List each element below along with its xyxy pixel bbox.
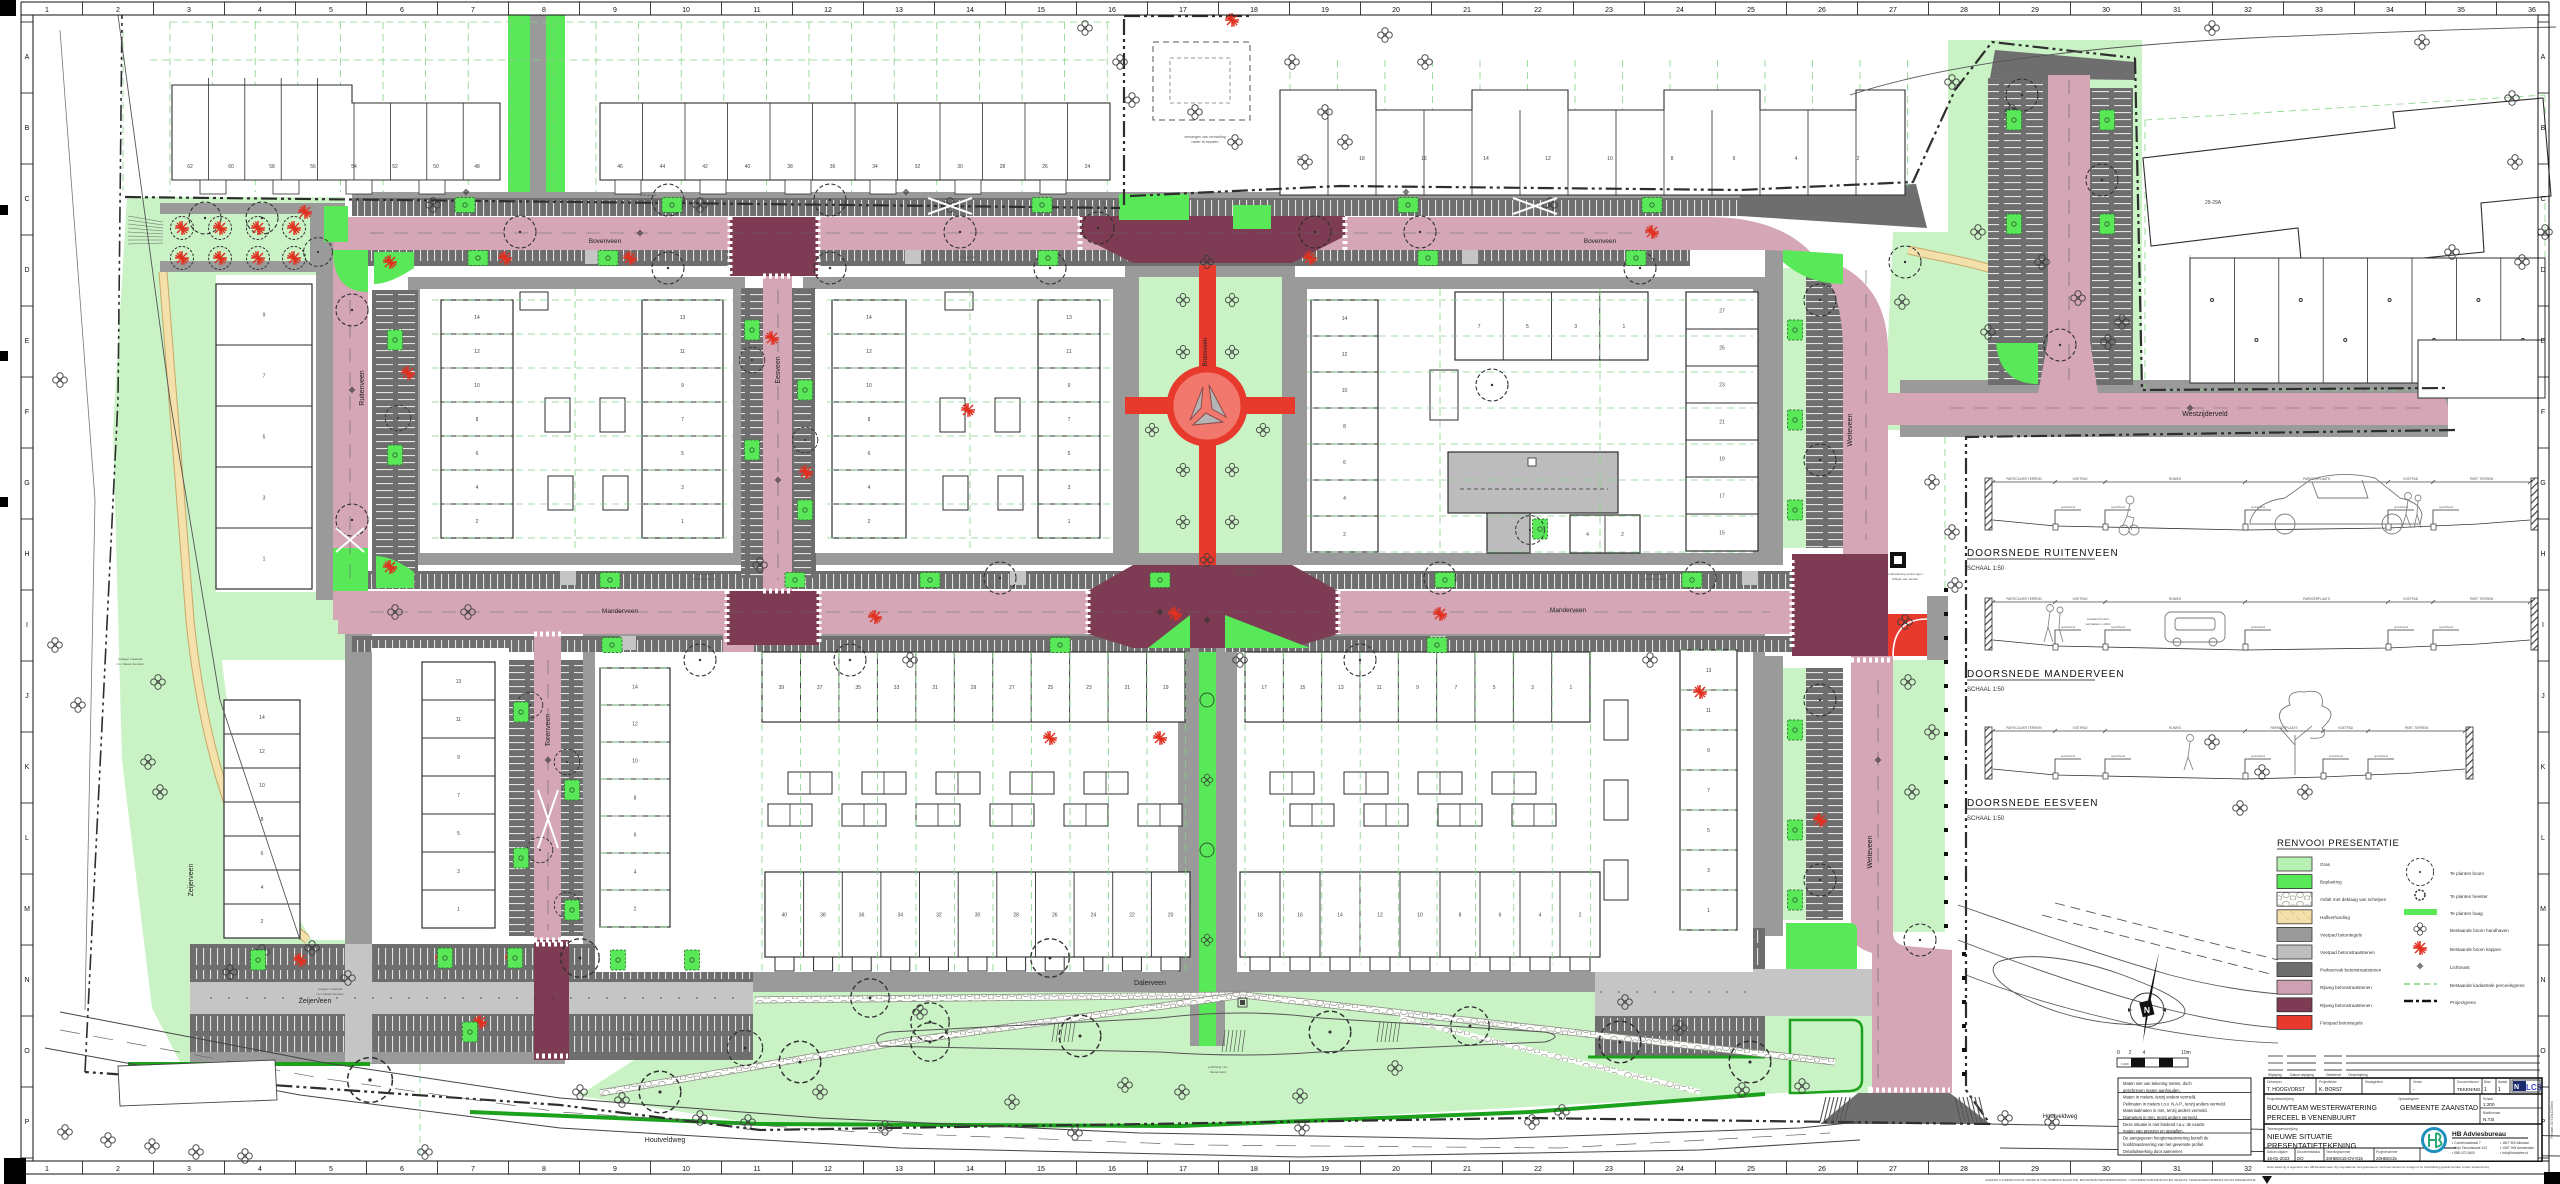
svg-text:7: 7 (1454, 685, 1457, 691)
svg-text:5: 5 (329, 1166, 333, 1173)
svg-text:aanlegplaats: aanlegplaats (696, 572, 714, 576)
svg-text:44: 44 (660, 164, 666, 170)
svg-text:30: 30 (2102, 1166, 2110, 1173)
svg-text:Te planten heester: Te planten heester (2450, 894, 2488, 899)
svg-text:Tekeningnummer: Tekeningnummer (2326, 1150, 2351, 1154)
svg-text:18: 18 (1257, 913, 1263, 919)
svg-text:33: 33 (2315, 7, 2323, 14)
svg-text:7: 7 (471, 1166, 475, 1173)
svg-text:Projectbeschrijving: Projectbeschrijving (2267, 1097, 2294, 1101)
svg-text:21: 21 (1463, 7, 1471, 14)
svg-text:39: 39 (778, 685, 784, 691)
svg-text:2: 2 (261, 919, 264, 925)
svg-text:7: 7 (1707, 788, 1710, 794)
svg-text:14: 14 (259, 715, 265, 721)
svg-text:stiftigen aan derden: stiftigen aan derden (1892, 577, 1919, 581)
svg-text:PRESENTATIETEKENING: PRESENTATIETEKENING (2267, 1141, 2356, 1150)
svg-text:Maten niet van tekening meten,: Maten niet van tekening meten, doch (2123, 1081, 2192, 1086)
svg-text:RIJWEG: RIJWEG (2169, 477, 2182, 481)
svg-text:26: 26 (1042, 164, 1048, 170)
svg-text:CAD8410 C:\USERS\CVITGF GROEP: CAD8410 C:\USERS\CVITGF GROEP B.V\06-20H… (1985, 1178, 2256, 1182)
svg-text:14: 14 (1483, 156, 1489, 162)
svg-text:Ruitenveen: Ruitenveen (359, 370, 366, 406)
svg-text:8: 8 (634, 796, 637, 802)
svg-text:aanlegplaats: aanlegplaats (1646, 572, 1664, 576)
svg-text:aanlegplaats: aanlegplaats (1236, 567, 1254, 571)
svg-text:huisvuilcontainers: huisvuilcontainers (1233, 572, 1257, 576)
svg-text:Documentstatus: Documentstatus (2297, 1150, 2320, 1154)
svg-text:VOETPAD: VOETPAD (2073, 597, 2089, 601)
svg-text:K. BORST: K. BORST (2319, 1087, 2342, 1093)
svg-text:Weiteveen: Weiteveen (1847, 413, 1854, 446)
svg-text:12: 12 (824, 7, 832, 14)
svg-text:Beplanting: Beplanting (2320, 880, 2342, 885)
svg-text:10: 10 (1417, 913, 1423, 919)
svg-text:2: 2 (1343, 532, 1346, 538)
svg-text:16: 16 (1297, 913, 1303, 919)
svg-text:14: 14 (966, 7, 974, 14)
svg-text:huisvuilcontainers: huisvuilcontainers (636, 198, 660, 202)
svg-text:10: 10 (682, 1166, 690, 1173)
svg-text:L: L (2541, 835, 2545, 842)
svg-text:24: 24 (1085, 164, 1091, 170)
svg-text:9: 9 (613, 1166, 617, 1173)
svg-text:2: 2 (1579, 913, 1582, 919)
svg-text:Datum uitgave: Datum uitgave (2267, 1150, 2288, 1154)
svg-text:12: 12 (1377, 913, 1383, 919)
svg-text:3: 3 (1574, 324, 1577, 330)
svg-text:opsluitband: opsluitband (2439, 505, 2454, 509)
svg-text:P: P (2541, 1119, 2546, 1126)
svg-text:DOORSNEDE EESVEEN: DOORSNEDE EESVEEN (1967, 798, 2098, 809)
svg-text:19: 19 (1163, 685, 1169, 691)
svg-text:Lichtmast: Lichtmast (2450, 965, 2470, 970)
svg-text:PARTICULIER TERREIN: PARTICULIER TERREIN (2006, 597, 2042, 601)
svg-text:7: 7 (1478, 324, 1481, 330)
svg-text:13: 13 (680, 315, 686, 321)
svg-text:Omschrijving: Omschrijving (2348, 1073, 2368, 1077)
svg-text:40: 40 (782, 913, 788, 919)
svg-text:18: 18 (1250, 7, 1258, 14)
svg-text:27: 27 (1889, 1166, 1897, 1173)
svg-text:opsluitband: opsluitband (2251, 625, 2266, 629)
svg-text:N: N (2144, 1005, 2150, 1015)
svg-text:12: 12 (474, 349, 480, 355)
svg-text:60: 60 (228, 164, 234, 170)
svg-text:• Comeniusstraat 7: • Comeniusstraat 7 (2452, 1141, 2481, 1145)
svg-text:opsluitband: opsluitband (2111, 625, 2126, 629)
svg-text:PARTICULIER TERREIN: PARTICULIER TERREIN (2006, 726, 2042, 730)
svg-text:10: 10 (259, 783, 265, 789)
svg-text:• 1817 MS Alkmaar: • 1817 MS Alkmaar (2500, 1141, 2530, 1145)
svg-text:bestaand trottoir: bestaand trottoir (2087, 617, 2109, 621)
svg-text:30: 30 (957, 164, 963, 170)
svg-text:H: H (24, 551, 29, 558)
svg-text:N: N (2514, 1084, 2519, 1091)
svg-text:aanbrengen: aanbrengen (620, 1037, 636, 1041)
svg-text:K: K (25, 764, 30, 771)
svg-text:onderplanting aanbrengen: onderplanting aanbrengen (1887, 572, 1922, 576)
svg-text:11: 11 (680, 349, 685, 355)
svg-text:28: 28 (1000, 164, 1006, 170)
svg-text:30: 30 (2102, 7, 2110, 14)
svg-text:D: D (24, 267, 29, 274)
svg-text:13: 13 (895, 1166, 903, 1173)
svg-text:Manderveen: Manderveen (602, 608, 639, 615)
svg-text:26: 26 (1818, 1166, 1826, 1173)
svg-text:32: 32 (2244, 7, 2252, 14)
svg-text:12: 12 (866, 349, 872, 355)
svg-text:RENVOOI PRESENTATIE: RENVOOI PRESENTATIE (2277, 838, 2399, 849)
svg-text:8: 8 (476, 417, 479, 423)
svg-text:1: 1 (1707, 908, 1710, 914)
svg-text:25: 25 (1719, 346, 1725, 352)
svg-text:C: C (24, 196, 29, 203)
svg-text:flauwe talud: flauwe talud (1210, 1070, 1226, 1074)
svg-text:Bestaande kadastrale perceelsg: Bestaande kadastrale perceelsgrens (2450, 983, 2525, 988)
svg-text:3: 3 (1068, 485, 1071, 491)
svg-text:Te planten boom: Te planten boom (2450, 871, 2484, 876)
svg-text:Deze tekening is eigendom van: Deze tekening is eigendom van HB Adviesb… (2267, 1165, 2490, 1169)
svg-text:18: 18 (1359, 156, 1365, 162)
svg-text:Wijziging: Wijziging (2268, 1073, 2282, 1077)
svg-text:1: 1 (2484, 1087, 2487, 1093)
svg-text:6: 6 (1343, 460, 1346, 466)
svg-text:28: 28 (1013, 913, 1019, 919)
svg-text:7: 7 (1068, 417, 1071, 423)
svg-text:10m: 10m (2181, 1050, 2191, 1056)
svg-text:11: 11 (1377, 685, 1382, 691)
svg-text:26: 26 (1052, 913, 1058, 919)
svg-text:18: 18 (1250, 1166, 1258, 1173)
svg-text:50: 50 (433, 164, 439, 170)
svg-text:DOORSNEDE MANDERVEEN: DOORSNEDE MANDERVEEN (1967, 669, 2125, 680)
svg-text:I: I (2542, 622, 2544, 629)
svg-text:9: 9 (1416, 685, 1419, 691)
svg-text:• Krijn Taconiskade 412: • Krijn Taconiskade 412 (2452, 1146, 2487, 1150)
svg-text:DOORSNEDE RUITENVEEN: DOORSNEDE RUITENVEEN (1967, 548, 2119, 559)
svg-text:K: K (2541, 764, 2546, 771)
svg-text:29-29A: 29-29A (2205, 200, 2222, 206)
svg-text:verharding: verharding (621, 1032, 636, 1036)
svg-text:Bronsveen: Bronsveen (1203, 338, 1209, 367)
svg-text:23: 23 (1605, 7, 1613, 14)
svg-text:opsluitband: opsluitband (2111, 754, 2126, 758)
svg-text:Peilmaten in meters t.o.v. N.A: Peilmaten in meters t.o.v. N.A.P., tenzi… (2123, 1101, 2226, 1106)
svg-text:35: 35 (2457, 7, 2465, 14)
svg-text:3: 3 (263, 496, 266, 502)
svg-text:Bestaande boom kappen: Bestaande boom kappen (2450, 947, 2502, 952)
svg-text:20: 20 (1392, 7, 1400, 14)
svg-text:H: H (2540, 551, 2545, 558)
svg-text:Voetpad betontegels: Voetpad betontegels (2320, 932, 2363, 937)
svg-text:12: 12 (259, 749, 265, 755)
svg-text:Gras: Gras (2320, 862, 2331, 867)
svg-text:10: 10 (632, 759, 638, 765)
svg-text:2: 2 (1857, 156, 1860, 162)
svg-text:31: 31 (932, 685, 938, 691)
svg-text:Detailuitwerking door aannemer: Detailuitwerking door aannemer. (2123, 1149, 2183, 1154)
svg-text:32: 32 (915, 164, 921, 170)
svg-text:3: 3 (457, 869, 460, 875)
svg-text:Maten in meters, tenzij anders: Maten in meters, tenzij anders vermeld. (2123, 1095, 2196, 1100)
svg-text:Opdrachtgever: Opdrachtgever (2398, 1097, 2420, 1101)
svg-text:NIEUWE SITUATIE: NIEUWE SITUATIE (2267, 1132, 2332, 1141)
svg-text:C: C (2540, 196, 2545, 203)
svg-text:27: 27 (1009, 685, 1015, 691)
svg-text:3: 3 (1707, 868, 1710, 874)
svg-text:Documentsoort: Documentsoort (2457, 1080, 2479, 1084)
svg-text:Houtveldweg: Houtveldweg (645, 1137, 686, 1144)
svg-text:geschreven maten aanhouden.: geschreven maten aanhouden. (2123, 1088, 2181, 1093)
svg-text:N: N (24, 977, 29, 984)
svg-text:5: 5 (681, 451, 684, 457)
svg-text:13: 13 (895, 7, 903, 14)
svg-text:9: 9 (613, 7, 617, 14)
svg-text:6: 6 (476, 451, 479, 457)
svg-text:L: L (25, 835, 29, 842)
svg-text:O: O (2540, 1048, 2546, 1055)
svg-text:3: 3 (681, 485, 684, 491)
svg-text:6: 6 (1499, 913, 1502, 919)
svg-text:Versie: Versie (2413, 1080, 2422, 1084)
svg-text:27: 27 (1719, 309, 1725, 315)
svg-text:36: 36 (830, 164, 836, 170)
svg-text:huisvuilcontainers: huisvuilcontainers (956, 260, 980, 264)
svg-text:B: B (2541, 125, 2546, 132)
svg-text:52: 52 (392, 164, 398, 170)
svg-text:Rijweg betonstraatstenen: Rijweg betonstraatstenen (2320, 1003, 2372, 1008)
svg-text:PARKEERPLAATS: PARKEERPLAATS (2303, 597, 2330, 601)
svg-text:5: 5 (329, 7, 333, 14)
svg-text:aanlegplaats: aanlegplaats (639, 193, 657, 197)
svg-text:6: 6 (400, 1166, 404, 1173)
svg-text:Bestaande boom handhaven: Bestaande boom handhaven (2450, 928, 2509, 933)
svg-text:11: 11 (753, 7, 760, 14)
svg-text:D: D (2540, 267, 2545, 274)
svg-text:4: 4 (258, 7, 262, 14)
svg-text:36: 36 (2528, 7, 2536, 14)
svg-text:verlagen maaiveld: verlagen maaiveld (118, 657, 143, 661)
svg-text:5: 5 (1493, 685, 1496, 691)
svg-text:4: 4 (868, 485, 871, 491)
svg-text:opsluitband: opsluitband (2061, 625, 2076, 629)
svg-text:20HB0415: 20HB0415 (2376, 1156, 2397, 1161)
svg-text:LCS: LCS (2526, 1083, 2543, 1092)
svg-text:Weiteveen: Weiteveen (1867, 835, 1874, 868)
svg-text:14: 14 (632, 685, 638, 691)
svg-text:PART. TERREIN: PART. TERREIN (2405, 726, 2429, 730)
svg-text:19: 19 (1719, 457, 1725, 463)
svg-text:hoofdmaatvoering van het gewen: hoofdmaatvoering van het gewenste profie… (2123, 1142, 2204, 1147)
svg-text:opsluitband: opsluitband (2061, 505, 2076, 509)
svg-text:3: 3 (187, 1166, 191, 1173)
svg-text:21: 21 (1125, 685, 1131, 691)
svg-text:13: 13 (456, 679, 462, 685)
svg-text:Asfalt met deklaag van schelpe: Asfalt met deklaag van schelpen (2320, 897, 2387, 902)
svg-text:11: 11 (1706, 708, 1711, 714)
svg-text:M: M (2540, 906, 2546, 913)
svg-text:25: 25 (1747, 1166, 1755, 1173)
svg-text:Dalerveen: Dalerveen (1134, 980, 1166, 987)
svg-text:21: 21 (1463, 1166, 1471, 1173)
svg-text:A: A (2541, 54, 2546, 61)
svg-text:34: 34 (872, 164, 878, 170)
svg-text:6: 6 (634, 833, 637, 839)
svg-text:G: G (24, 480, 29, 487)
svg-text:26: 26 (1818, 7, 1826, 14)
svg-text:HB Adviesbureau: HB Adviesbureau (2452, 1131, 2506, 1138)
svg-text:9: 9 (1068, 383, 1071, 389)
svg-text:29: 29 (971, 685, 977, 691)
svg-text:Schaal: Schaal (2483, 1097, 2493, 1101)
svg-text:nader te bepalen: nader te bepalen (1192, 140, 1219, 144)
svg-text:O: O (24, 1048, 30, 1055)
svg-text:opsluitband: opsluitband (2111, 505, 2126, 509)
svg-text:Zeijerveen: Zeijerveen (188, 864, 195, 897)
svg-text:31: 31 (2173, 7, 2181, 14)
svg-text:24: 24 (1091, 913, 1097, 919)
svg-text:17: 17 (1179, 1166, 1187, 1173)
svg-text:6: 6 (1733, 156, 1736, 162)
svg-text:BOUWTEAM WESTERWATERING: BOUWTEAM WESTERWATERING (2267, 1105, 2377, 1112)
svg-text:VOETPAD: VOETPAD (2073, 477, 2089, 481)
svg-text:35: 35 (855, 685, 861, 691)
svg-text:7: 7 (681, 417, 684, 423)
svg-text:VOETPAD: VOETPAD (2073, 726, 2089, 730)
svg-text:Stadsgebied: Stadsgebied (2365, 1080, 2383, 1084)
svg-text:• info@hbadvies.nl: • info@hbadvies.nl (2500, 1151, 2528, 1155)
svg-text:4: 4 (476, 485, 479, 491)
svg-text:4: 4 (261, 885, 264, 891)
svg-text:VOETPAD: VOETPAD (2338, 726, 2354, 730)
svg-text:N.T.B: N.T.B (2483, 1117, 2494, 1122)
svg-text:aanlegplaats: aanlegplaats (959, 255, 977, 259)
svg-text:Projectgrens: Projectgrens (2450, 1000, 2476, 1005)
svg-text:12: 12 (1342, 352, 1348, 358)
svg-text:15: 15 (1037, 7, 1045, 14)
svg-text:• 1087 HW Amsterdam: • 1087 HW Amsterdam (2500, 1146, 2535, 1150)
svg-text:8: 8 (542, 1166, 546, 1173)
svg-text:5: 5 (1707, 828, 1710, 834)
svg-text:F: F (25, 409, 29, 416)
svg-text:27: 27 (1889, 7, 1897, 14)
svg-text:17: 17 (1179, 7, 1187, 14)
svg-text:16: 16 (1421, 156, 1427, 162)
svg-text:Westzijderveld: Westzijderveld (2182, 411, 2227, 418)
svg-text:Deze situatie is niet bindend: Deze situatie is niet bindend t.a.v. de … (2123, 1122, 2205, 1127)
svg-text:6: 6 (261, 851, 264, 857)
svg-text:19: 19 (1321, 7, 1329, 14)
svg-text:1: 1 (681, 519, 684, 525)
svg-text:11: 11 (1066, 349, 1071, 355)
svg-text:PART. TERREIN: PART. TERREIN (2470, 597, 2494, 601)
svg-text:Parkeervak betonstraatstenen: Parkeervak betonstraatstenen (2320, 968, 2382, 973)
svg-text:4: 4 (2143, 1050, 2146, 1056)
svg-text:29: 29 (2031, 7, 2039, 14)
svg-text:Bovenveen: Bovenveen (589, 238, 622, 245)
svg-text:10: 10 (1342, 388, 1348, 394)
svg-text:16: 16 (1108, 1166, 1116, 1173)
svg-text:J: J (25, 693, 29, 700)
svg-text:opsluitband: opsluitband (2061, 754, 2076, 758)
svg-text:25: 25 (1048, 685, 1054, 691)
svg-text:t.b.v. flauwe boorden: t.b.v. flauwe boorden (316, 992, 344, 996)
svg-text:5: 5 (457, 831, 460, 837)
svg-text:4: 4 (634, 870, 637, 876)
svg-text:A: A (25, 54, 30, 61)
svg-text:7: 7 (263, 374, 266, 380)
svg-text:Datum wijziging: Datum wijziging (2290, 1073, 2314, 1077)
svg-text:14: 14 (1342, 316, 1348, 322)
svg-text:2: 2 (476, 519, 479, 525)
svg-text:8: 8 (868, 417, 871, 423)
svg-text:P: P (25, 1119, 30, 1126)
svg-text:N: N (2540, 977, 2545, 984)
svg-text:11: 11 (753, 1166, 760, 1173)
svg-text:1: 1 (45, 1166, 49, 1173)
svg-text:30: 30 (975, 913, 981, 919)
svg-text:opsluitband: opsluitband (2251, 754, 2266, 758)
svg-text:opsluitband: opsluitband (2329, 754, 2344, 758)
svg-text:40: 40 (745, 164, 751, 170)
svg-text:VOETPAD: VOETPAD (2403, 597, 2419, 601)
svg-text:38: 38 (787, 164, 793, 170)
svg-text:PART. TERREIN: PART. TERREIN (2470, 477, 2494, 481)
svg-text:10: 10 (866, 383, 872, 389)
svg-text:Halfverharding: Halfverharding (2320, 915, 2350, 920)
svg-text:22: 22 (1129, 913, 1135, 919)
svg-text:16: 16 (1108, 7, 1116, 14)
svg-text:2: 2 (116, 1166, 120, 1173)
svg-text:13: 13 (1338, 685, 1344, 691)
svg-text:DO: DO (2297, 1156, 2304, 1161)
svg-text:SCHAAL 1:50: SCHAAL 1:50 (1967, 566, 2005, 572)
svg-text:34: 34 (2386, 7, 2394, 14)
svg-text:5: 5 (263, 435, 266, 441)
svg-text:VOETPAD: VOETPAD (2403, 477, 2419, 481)
svg-text:opsluitband: opsluitband (2394, 625, 2409, 629)
svg-text:opsluitband: opsluitband (2374, 754, 2389, 758)
svg-text:Torenveen: Torenveen (545, 714, 552, 747)
svg-text:4: 4 (1343, 496, 1346, 502)
svg-text:8: 8 (1343, 424, 1346, 430)
svg-text:31: 31 (2173, 1166, 2181, 1173)
svg-text:De aangegeven hoogtemaatvoerin: De aangegeven hoogtemaatvoering betreft … (2123, 1135, 2209, 1140)
svg-text:I: I (26, 622, 28, 629)
svg-text:SCHAAL 1:50: SCHAAL 1:50 (1967, 816, 2005, 822)
svg-text:3: 3 (1531, 685, 1534, 691)
svg-text:M: M (24, 906, 30, 913)
svg-text:54: 54 (351, 164, 357, 170)
svg-text:2: 2 (868, 519, 871, 525)
svg-text:verplaatsen +130m: verplaatsen +130m (2085, 622, 2111, 626)
svg-text:13: 13 (1066, 315, 1072, 321)
svg-text:2: 2 (116, 7, 120, 14)
svg-text:23: 23 (1719, 383, 1725, 389)
svg-text:6: 6 (400, 7, 404, 14)
svg-text:7: 7 (471, 7, 475, 14)
svg-text:20HB0415-DV-015: 20HB0415-DV-015 (2326, 1156, 2363, 1161)
svg-text:T. HOOGVORST: T. HOOGVORST (2267, 1087, 2305, 1093)
svg-text:29: 29 (2031, 1166, 2039, 1173)
svg-text:opsluitband: opsluitband (2439, 625, 2454, 629)
svg-text:20: 20 (1392, 1166, 1400, 1173)
svg-text:E: E (25, 338, 30, 345)
svg-text:17: 17 (1719, 494, 1725, 500)
svg-text:Eesveen: Eesveen (775, 356, 782, 383)
svg-text:42: 42 (702, 164, 708, 170)
